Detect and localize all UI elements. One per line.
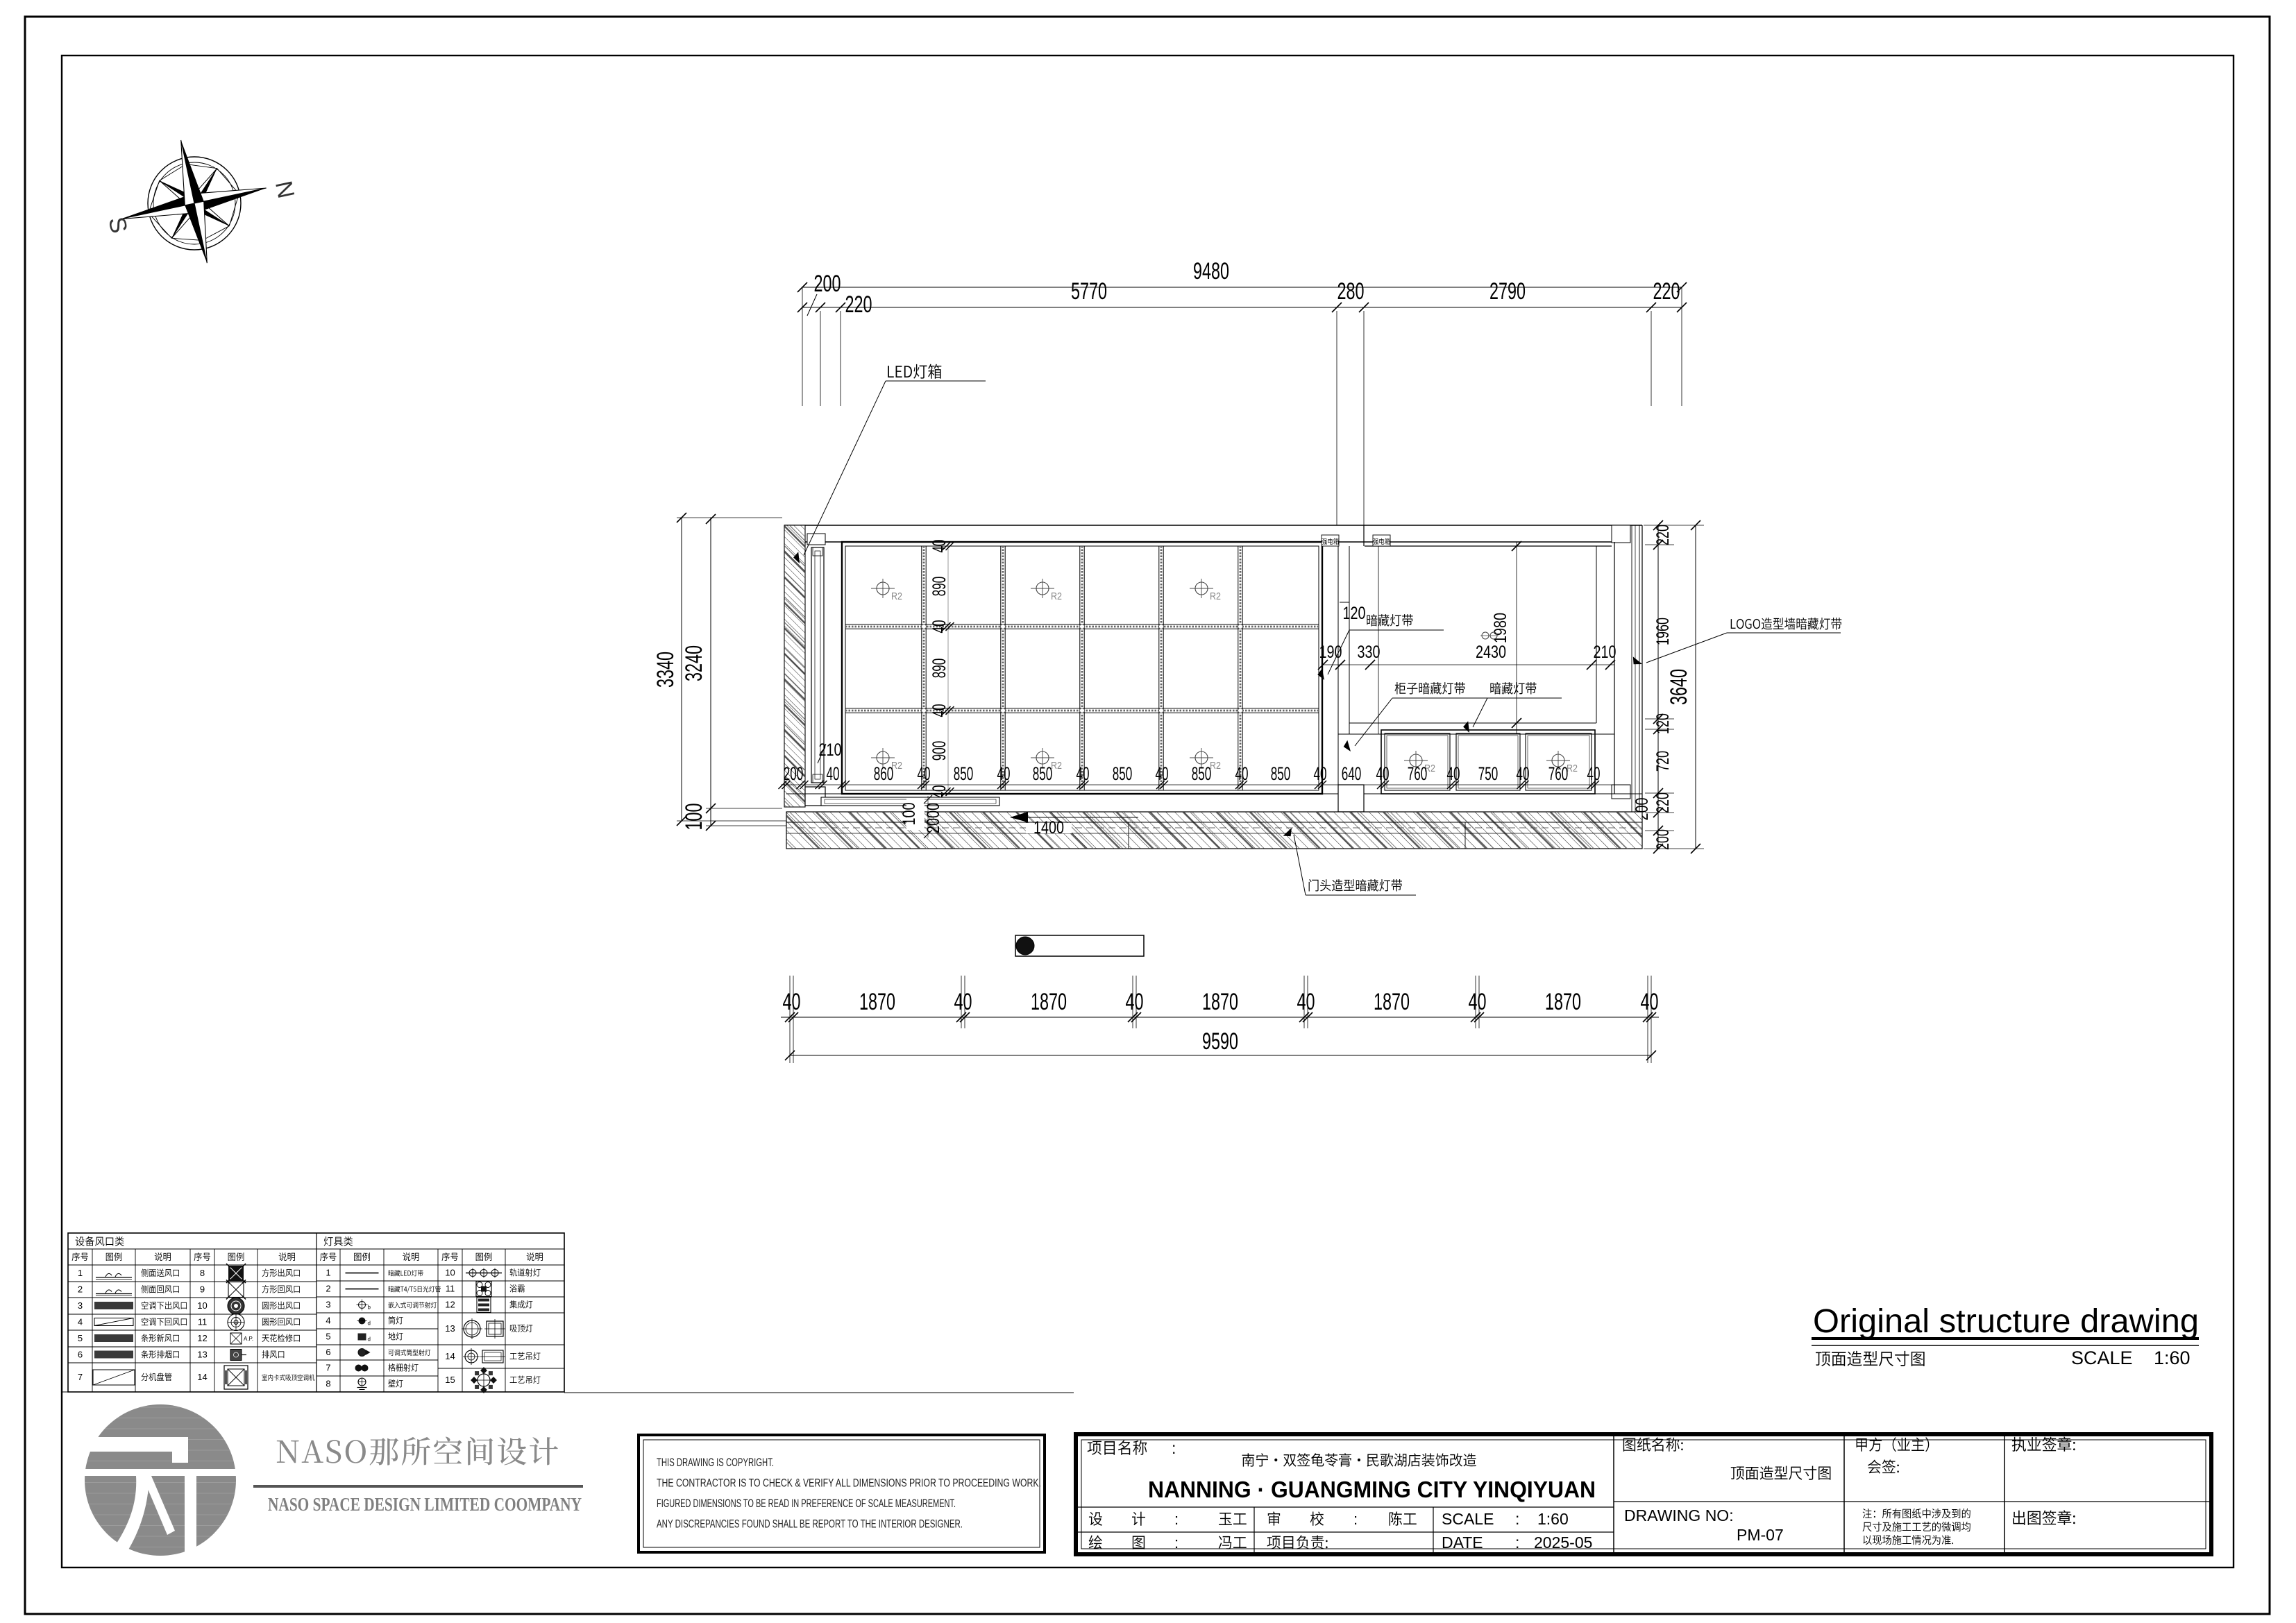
svg-text::: : [1515,1533,1519,1552]
svg-text:40: 40 [929,785,949,799]
svg-text:120: 120 [1343,604,1366,623]
svg-text:THE CONTRACTOR IS TO CHECK & V: THE CONTRACTOR IS TO CHECK & VERIFY ALL … [657,1477,1041,1490]
svg-text:1: 1 [78,1268,83,1278]
svg-text:1:60: 1:60 [1537,1510,1569,1528]
svg-text:40: 40 [1297,989,1315,1015]
svg-text:SCALE: SCALE [2071,1348,2133,1368]
svg-text:40: 40 [783,989,801,1015]
svg-text:DATE: DATE [1442,1533,1483,1552]
svg-text:860: 860 [874,763,894,784]
svg-text:40: 40 [918,763,931,784]
svg-text:13: 13 [445,1323,455,1334]
svg-text:330: 330 [1358,643,1381,662]
svg-text:760: 760 [1408,763,1428,784]
svg-text:2: 2 [78,1284,83,1295]
svg-text:1:60: 1:60 [2154,1348,2191,1368]
svg-text:7: 7 [326,1363,330,1373]
svg-text:640: 640 [1342,763,1362,784]
svg-text:14: 14 [445,1351,455,1361]
svg-text:850: 850 [954,763,974,784]
svg-text:40: 40 [997,763,1011,784]
svg-text:40: 40 [954,989,972,1015]
svg-text:d: d [368,1336,371,1343]
svg-text:40: 40 [1517,763,1530,784]
svg-text:ANY DISCREPANCIES FOUND SHALL: ANY DISCREPANCIES FOUND SHALL BE REPORT … [657,1518,963,1531]
svg-text:1870: 1870 [1202,989,1238,1015]
svg-text:100: 100 [900,803,919,826]
svg-text:40: 40 [1235,763,1249,784]
svg-text:40: 40 [1077,763,1090,784]
svg-text:2: 2 [326,1284,330,1294]
svg-text:b: b [368,1305,371,1311]
svg-text:2000: 2000 [924,803,943,833]
svg-text::: : [1515,1510,1519,1528]
svg-text:40: 40 [1447,763,1460,784]
svg-text:THIS DRAWING IS COPYRIGHT.: THIS DRAWING IS COPYRIGHT. [657,1456,774,1469]
svg-text:R2: R2 [891,590,902,602]
svg-text:200: 200 [784,763,804,784]
svg-text:220: 220 [1653,525,1673,545]
svg-text:5770: 5770 [1071,278,1107,305]
svg-text:220: 220 [1653,792,1673,813]
svg-text:11: 11 [198,1317,208,1327]
svg-text:900: 900 [929,741,949,761]
svg-text:9480: 9480 [1193,258,1229,284]
svg-text:210: 210 [1594,643,1617,662]
svg-text:1960: 1960 [1653,618,1673,645]
svg-text:15: 15 [445,1375,455,1385]
svg-text:5: 5 [326,1332,330,1342]
svg-text:1870: 1870 [1031,989,1067,1015]
svg-text:2430: 2430 [1476,643,1506,662]
svg-text:40: 40 [827,763,840,784]
svg-text:850: 850 [1113,763,1133,784]
svg-text:R2: R2 [1210,760,1221,772]
svg-text:NANNING · GUANGMING CITY YINQI: NANNING · GUANGMING CITY YINQIYUAN [1148,1477,1596,1502]
svg-text:R2: R2 [1567,763,1578,774]
svg-text:4: 4 [78,1317,83,1327]
svg-text:220: 220 [845,291,872,318]
svg-text:3: 3 [78,1300,83,1311]
svg-text:40: 40 [1469,989,1487,1015]
svg-text:7: 7 [78,1372,83,1382]
svg-text:4: 4 [326,1316,330,1326]
svg-text:PM-07: PM-07 [1737,1526,1784,1544]
svg-text:760: 760 [1548,763,1569,784]
svg-text:200: 200 [814,271,841,297]
svg-text:d: d [368,1320,371,1327]
svg-text:12: 12 [445,1300,455,1310]
svg-text:1400: 1400 [1033,818,1064,838]
svg-text:890: 890 [929,658,949,679]
svg-text:2025-05: 2025-05 [1534,1533,1592,1552]
svg-text:8: 8 [326,1379,330,1389]
svg-text:13: 13 [197,1350,207,1360]
svg-text:6: 6 [78,1350,83,1360]
svg-text:5: 5 [78,1333,83,1343]
svg-text:1: 1 [326,1268,330,1278]
svg-text:850: 850 [1033,763,1053,784]
svg-text:3340: 3340 [652,652,679,688]
svg-text:3: 3 [326,1300,330,1310]
svg-text:6: 6 [326,1347,330,1357]
svg-text:9: 9 [200,1284,205,1295]
svg-text:200: 200 [1653,829,1673,850]
svg-text:11: 11 [446,1284,455,1294]
svg-text:9590: 9590 [1202,1028,1238,1055]
svg-text:40: 40 [1641,989,1659,1015]
svg-text:10: 10 [445,1268,455,1278]
svg-text:220: 220 [1653,278,1680,305]
svg-text:720: 720 [1653,751,1673,772]
svg-text:FIGURED DIMENSIONS TO BE READ: FIGURED DIMENSIONS TO BE READ IN PREFERE… [657,1497,956,1510]
svg-text:40: 40 [1587,763,1601,784]
svg-text:A.P.: A.P. [244,1336,253,1342]
svg-text:R2: R2 [1051,590,1062,602]
svg-text:120: 120 [1653,713,1673,734]
svg-text:210: 210 [819,740,842,760]
svg-text:890: 890 [929,577,949,597]
svg-text:40: 40 [929,704,949,717]
svg-text:40: 40 [929,540,949,553]
svg-text:R2: R2 [1210,590,1221,602]
svg-text::: : [1172,1439,1176,1457]
svg-text:DRAWING NO:: DRAWING NO: [1624,1506,1734,1524]
svg-text::: : [1174,1534,1179,1552]
svg-text:40: 40 [1314,763,1327,784]
svg-text:40: 40 [1156,763,1169,784]
svg-text:R2: R2 [1051,760,1062,772]
svg-text:12: 12 [197,1333,207,1343]
svg-text::: : [1353,1511,1358,1528]
svg-text:1870: 1870 [1545,989,1581,1015]
svg-text:14: 14 [197,1372,207,1382]
svg-text:40: 40 [929,620,949,634]
svg-text:850: 850 [1192,763,1212,784]
svg-text::: : [1174,1511,1179,1528]
svg-text:Original structure drawing: Original structure drawing [1813,1303,2199,1340]
svg-text:NASO SPACE DESIGN LIMITED COOM: NASO SPACE DESIGN LIMITED COOMPANY [268,1494,582,1515]
svg-text:280: 280 [1337,278,1365,305]
svg-text:2790: 2790 [1489,278,1526,305]
svg-text:850: 850 [1271,763,1291,784]
svg-text:750: 750 [1478,763,1499,784]
svg-text:8: 8 [200,1268,205,1278]
svg-text:1870: 1870 [859,989,895,1015]
svg-text:40: 40 [1376,763,1390,784]
svg-text:SCALE: SCALE [1442,1510,1494,1528]
svg-text:1870: 1870 [1374,989,1410,1015]
svg-text:10: 10 [197,1300,207,1311]
svg-text:100: 100 [681,804,707,831]
svg-text:3640: 3640 [1666,669,1692,705]
svg-text:40: 40 [1126,989,1144,1015]
svg-text:1980: 1980 [1491,613,1510,643]
svg-text:3240: 3240 [681,645,707,681]
